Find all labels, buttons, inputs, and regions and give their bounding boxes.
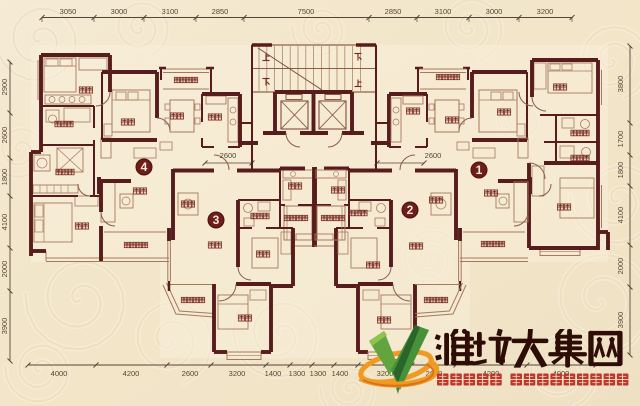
svg-text:3200: 3200 [537, 7, 554, 16]
svg-text:3000: 3000 [486, 7, 503, 16]
svg-text:2: 2 [407, 203, 414, 217]
svg-text:2900: 2900 [0, 79, 9, 96]
svg-text:3900: 3900 [616, 312, 625, 329]
svg-text:1: 1 [476, 163, 483, 177]
svg-text:2000: 2000 [616, 258, 625, 275]
svg-text:1800: 1800 [616, 162, 625, 179]
svg-text:1300: 1300 [289, 369, 306, 378]
svg-text:1700: 1700 [616, 131, 625, 148]
svg-text:3900: 3900 [0, 318, 9, 335]
svg-text:1800: 1800 [0, 169, 9, 186]
svg-text:1400: 1400 [332, 369, 349, 378]
svg-text:4: 4 [141, 160, 148, 174]
svg-text:3050: 3050 [60, 7, 77, 16]
svg-text:3000: 3000 [111, 7, 128, 16]
svg-text:3: 3 [213, 213, 220, 227]
svg-text:4100: 4100 [0, 214, 9, 231]
svg-text:2850: 2850 [385, 7, 402, 16]
svg-text:2000: 2000 [0, 261, 9, 278]
svg-text:1300: 1300 [310, 369, 327, 378]
svg-text:2850: 2850 [212, 7, 229, 16]
svg-text:3200: 3200 [229, 369, 246, 378]
svg-text:2600: 2600 [425, 151, 442, 160]
svg-text:2600: 2600 [0, 127, 9, 144]
svg-text:4100: 4100 [616, 207, 625, 224]
svg-text:4000: 4000 [51, 369, 68, 378]
svg-text:2600: 2600 [220, 151, 237, 160]
svg-text:2600: 2600 [182, 369, 199, 378]
svg-text:1400: 1400 [265, 369, 282, 378]
svg-text:7500: 7500 [298, 7, 315, 16]
svg-text:3100: 3100 [162, 7, 179, 16]
svg-text:4200: 4200 [123, 369, 140, 378]
svg-text:3100: 3100 [435, 7, 452, 16]
svg-text:3800: 3800 [616, 76, 625, 93]
